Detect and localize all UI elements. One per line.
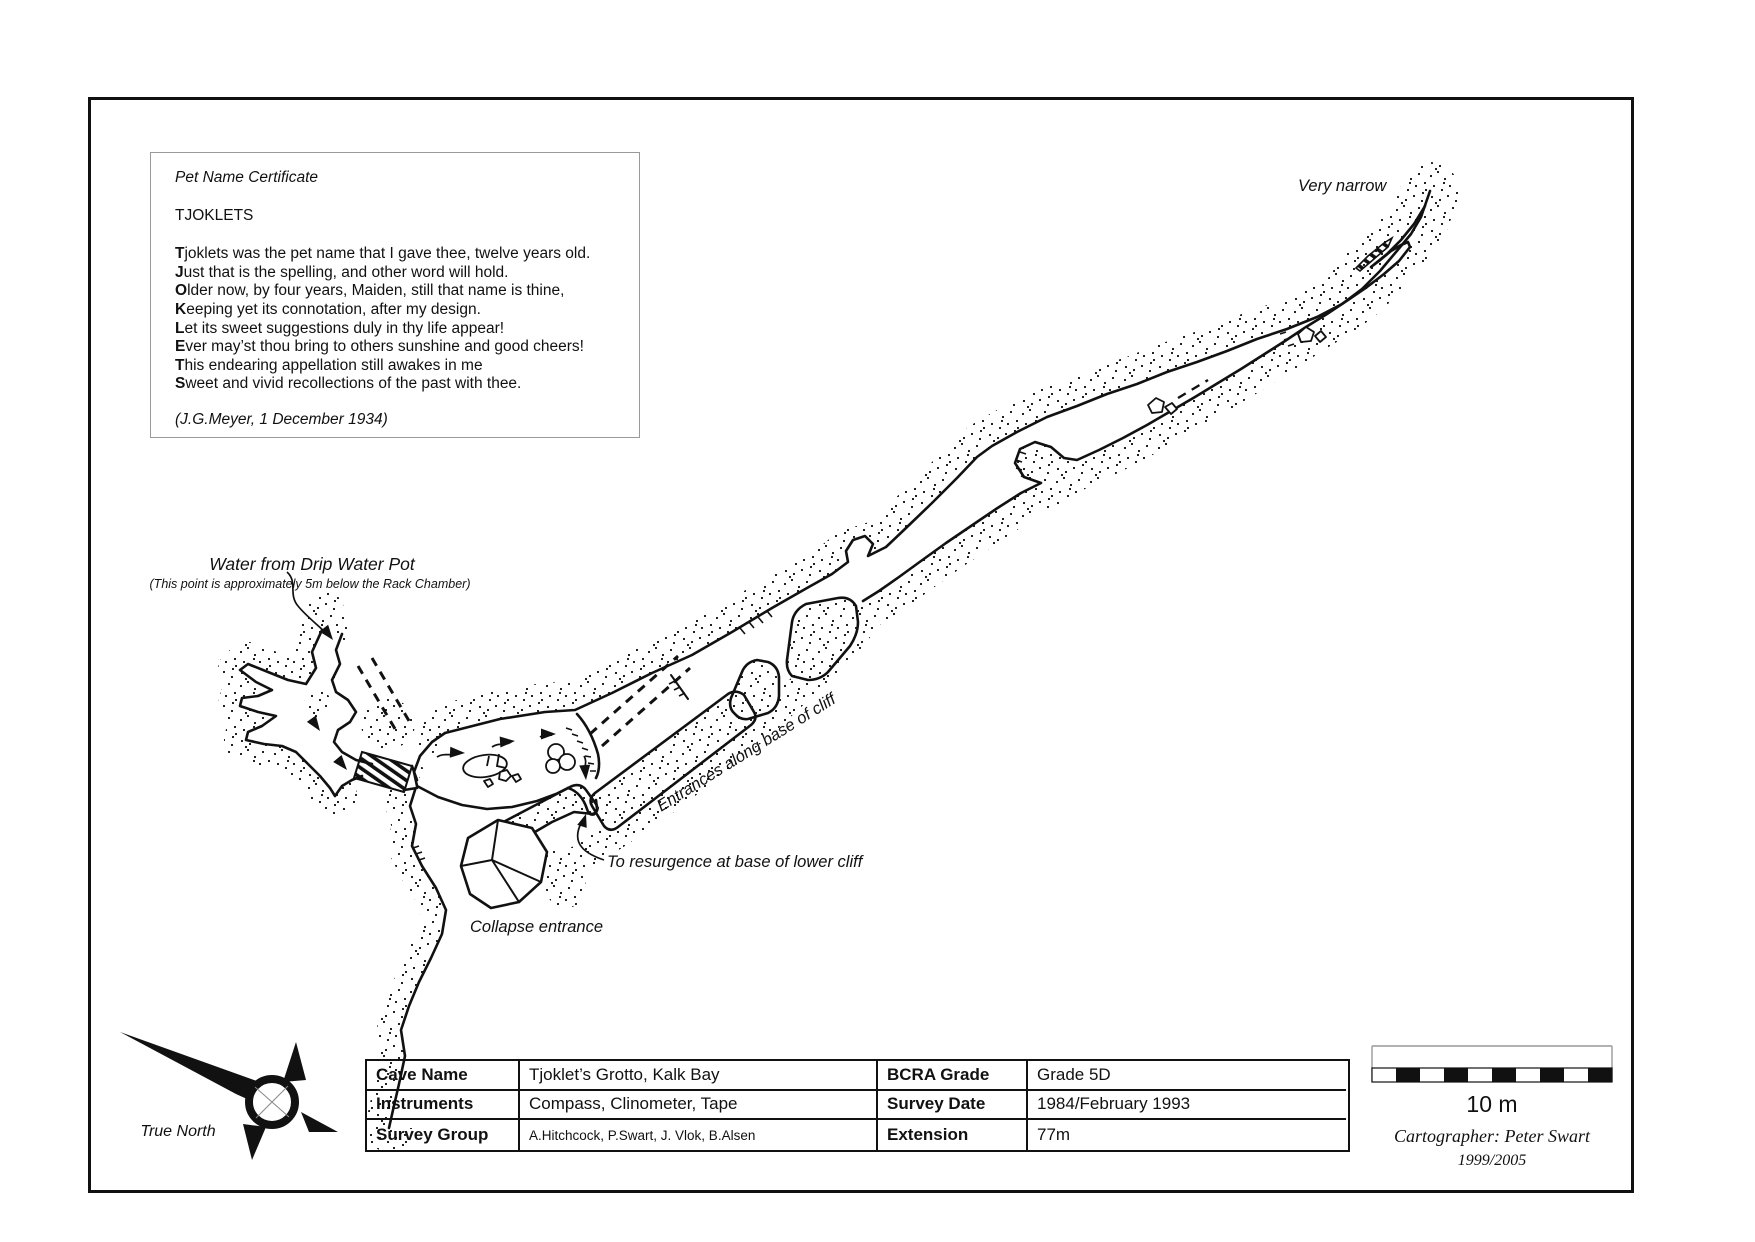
survey-group-label: Survey Group (367, 1120, 520, 1150)
bcra-grade-label: BCRA Grade (878, 1061, 1028, 1091)
cave-name-value: Tjoklet’s Grotto, Kalk Bay (520, 1061, 878, 1091)
collapse-label: Collapse entrance (470, 918, 603, 936)
block-square (787, 598, 858, 680)
certificate-name: TJOKLETS (175, 207, 629, 226)
water-title-label: Water from Drip Water Pot (209, 554, 416, 574)
survey-date-value: 1984/February 1993 (1028, 1091, 1346, 1121)
survey-group-value: A.Hitchcock, P.Swart, J. Vlok, B.Alsen (520, 1120, 878, 1150)
certificate-title: Pet Name Certificate (175, 169, 629, 188)
bcra-grade-value: Grade 5D (1028, 1061, 1346, 1091)
scale-bar: 10 m Cartographer: Peter Swart 1999/2005 (1372, 1046, 1612, 1169)
poem-line: This endearing appellation still awakes … (175, 357, 629, 376)
cartographer-years: 1999/2005 (1458, 1152, 1526, 1169)
cave-name-label: Cave Name (367, 1061, 520, 1091)
survey-date-label: Survey Date (878, 1091, 1028, 1121)
instruments-label: Instruments (367, 1091, 520, 1121)
hatched-ramp (354, 752, 412, 792)
poem-line: Sweet and vivid recollections of the pas… (175, 375, 629, 394)
collapse-boulder (461, 820, 547, 908)
extension-label: Extension (878, 1120, 1028, 1150)
poem-line: Keeping yet its connotation, after my de… (175, 301, 629, 320)
poem-attribution: (J.G.Meyer, 1 December 1934) (175, 411, 629, 430)
poem-line: Older now, by four years, Maiden, still … (175, 282, 629, 301)
poem-line: Ever may’st thou bring to others sunshin… (175, 338, 629, 357)
extension-value: 77m (1028, 1120, 1346, 1150)
water-sub-label: (This point is approximately 5m below th… (150, 577, 471, 591)
north-arrow: True North (120, 1032, 338, 1160)
resurgence-label: To resurgence at base of lower cliff (607, 853, 865, 871)
scale-label: 10 m (1466, 1091, 1517, 1117)
survey-info-table: Cave Name Tjoklet’s Grotto, Kalk Bay BCR… (365, 1059, 1350, 1152)
poem-line: Just that is the spelling, and other wor… (175, 264, 629, 283)
poem-line: Tjoklets was the pet name that I gave th… (175, 245, 629, 264)
cave-survey-sheet: Very narrow Water from Drip Water Pot (T… (0, 0, 1755, 1242)
pet-name-certificate-box: Pet Name Certificate TJOKLETS Tjoklets w… (150, 152, 640, 438)
poem-line: Let its sweet suggestions duly in thy li… (175, 320, 629, 339)
very-narrow-label: Very narrow (1298, 177, 1387, 195)
true-north-label: True North (140, 1123, 215, 1140)
instruments-value: Compass, Clinometer, Tape (520, 1091, 878, 1121)
cartographer-label: Cartographer: Peter Swart (1394, 1126, 1591, 1146)
